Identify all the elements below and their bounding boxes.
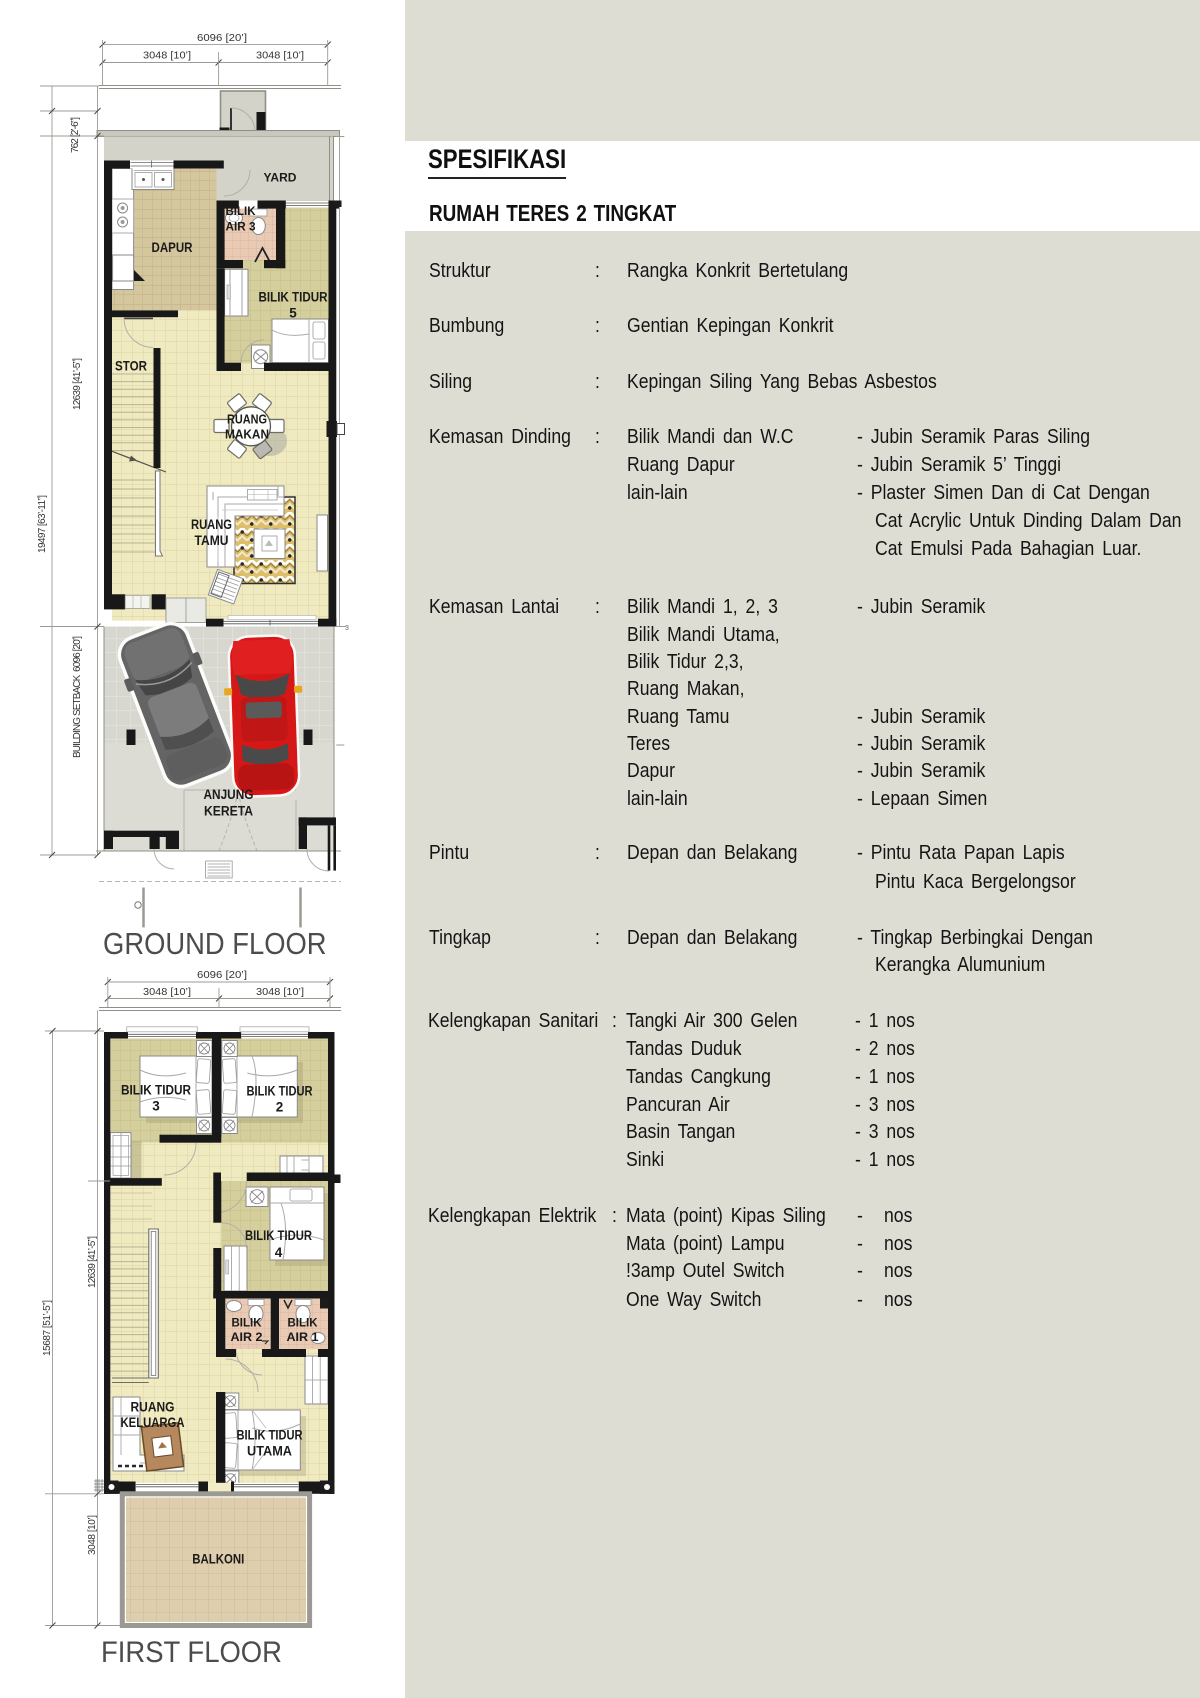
svg-text:MAKAN: MAKAN xyxy=(225,427,269,442)
svg-text:19497 [63’-11”]: 19497 [63’-11”] xyxy=(37,495,48,553)
svg-text:3048 [10’]: 3048 [10’] xyxy=(143,986,191,998)
svg-text:762 [2’-6”]: 762 [2’-6”] xyxy=(70,117,81,153)
svg-text:12639 [41’-5”]: 12639 [41’-5”] xyxy=(72,358,83,410)
svg-text:RUANG: RUANG xyxy=(131,1400,175,1415)
svg-text:UTAMA: UTAMA xyxy=(247,1444,292,1459)
svg-text:6096 [20’]: 6096 [20’] xyxy=(197,32,247,44)
svg-text:12639 [41’-5”]: 12639 [41’-5”] xyxy=(87,1236,98,1288)
svg-text:BILIK TIDUR: BILIK TIDUR xyxy=(247,1084,313,1099)
svg-text:RUANG: RUANG xyxy=(191,517,232,532)
svg-text:BILIK TIDUR: BILIK TIDUR xyxy=(121,1083,191,1098)
svg-text:TAMU: TAMU xyxy=(195,533,229,548)
svg-text:DAPUR: DAPUR xyxy=(152,239,193,255)
svg-text:ANJUNG: ANJUNG xyxy=(204,787,254,802)
svg-text:3048 [10’]: 3048 [10’] xyxy=(256,50,304,62)
svg-text:6096 [20’]: 6096 [20’] xyxy=(197,969,247,981)
svg-text:5: 5 xyxy=(289,306,297,321)
svg-text:BILIK: BILIK xyxy=(288,1318,319,1330)
svg-text:3048 [10’]: 3048 [10’] xyxy=(256,986,304,998)
svg-text:BILIK TIDUR: BILIK TIDUR xyxy=(237,1428,303,1443)
svg-text:KERETA: KERETA xyxy=(204,804,253,819)
svg-text:BALKONI: BALKONI xyxy=(192,1552,244,1567)
svg-text:2: 2 xyxy=(276,1100,284,1115)
svg-text:AIR 3: AIR 3 xyxy=(226,222,256,234)
svg-text:BILIK: BILIK xyxy=(232,1318,263,1330)
svg-text:AIR 1: AIR 1 xyxy=(287,1332,320,1344)
svg-text:KELUARGA: KELUARGA xyxy=(121,1415,185,1430)
svg-text:GROUND FLOOR: GROUND FLOOR xyxy=(103,926,327,961)
svg-text:STOR: STOR xyxy=(115,358,147,374)
svg-text:BILIK TIDUR: BILIK TIDUR xyxy=(259,290,328,305)
svg-text:3: 3 xyxy=(152,1099,160,1114)
svg-text:AIR 2: AIR 2 xyxy=(231,1332,263,1344)
svg-text:BILIK: BILIK xyxy=(226,206,257,218)
svg-text:3: 3 xyxy=(345,625,349,632)
svg-text:4: 4 xyxy=(275,1245,283,1260)
svg-text:15687 [51’-5”]: 15687 [51’-5”] xyxy=(42,1300,53,1356)
svg-text:FIRST FLOOR: FIRST FLOOR xyxy=(101,1636,282,1669)
svg-text:BUILDING SETBACK 6096 [20’]: BUILDING SETBACK 6096 [20’] xyxy=(72,636,83,758)
svg-text:BILIK TIDUR: BILIK TIDUR xyxy=(245,1228,312,1243)
svg-text:3048 [10’]: 3048 [10’] xyxy=(87,1515,98,1555)
svg-text:YARD: YARD xyxy=(264,171,297,185)
svg-text:3048 [10’]: 3048 [10’] xyxy=(143,50,191,62)
svg-text:RUANG: RUANG xyxy=(227,412,267,427)
